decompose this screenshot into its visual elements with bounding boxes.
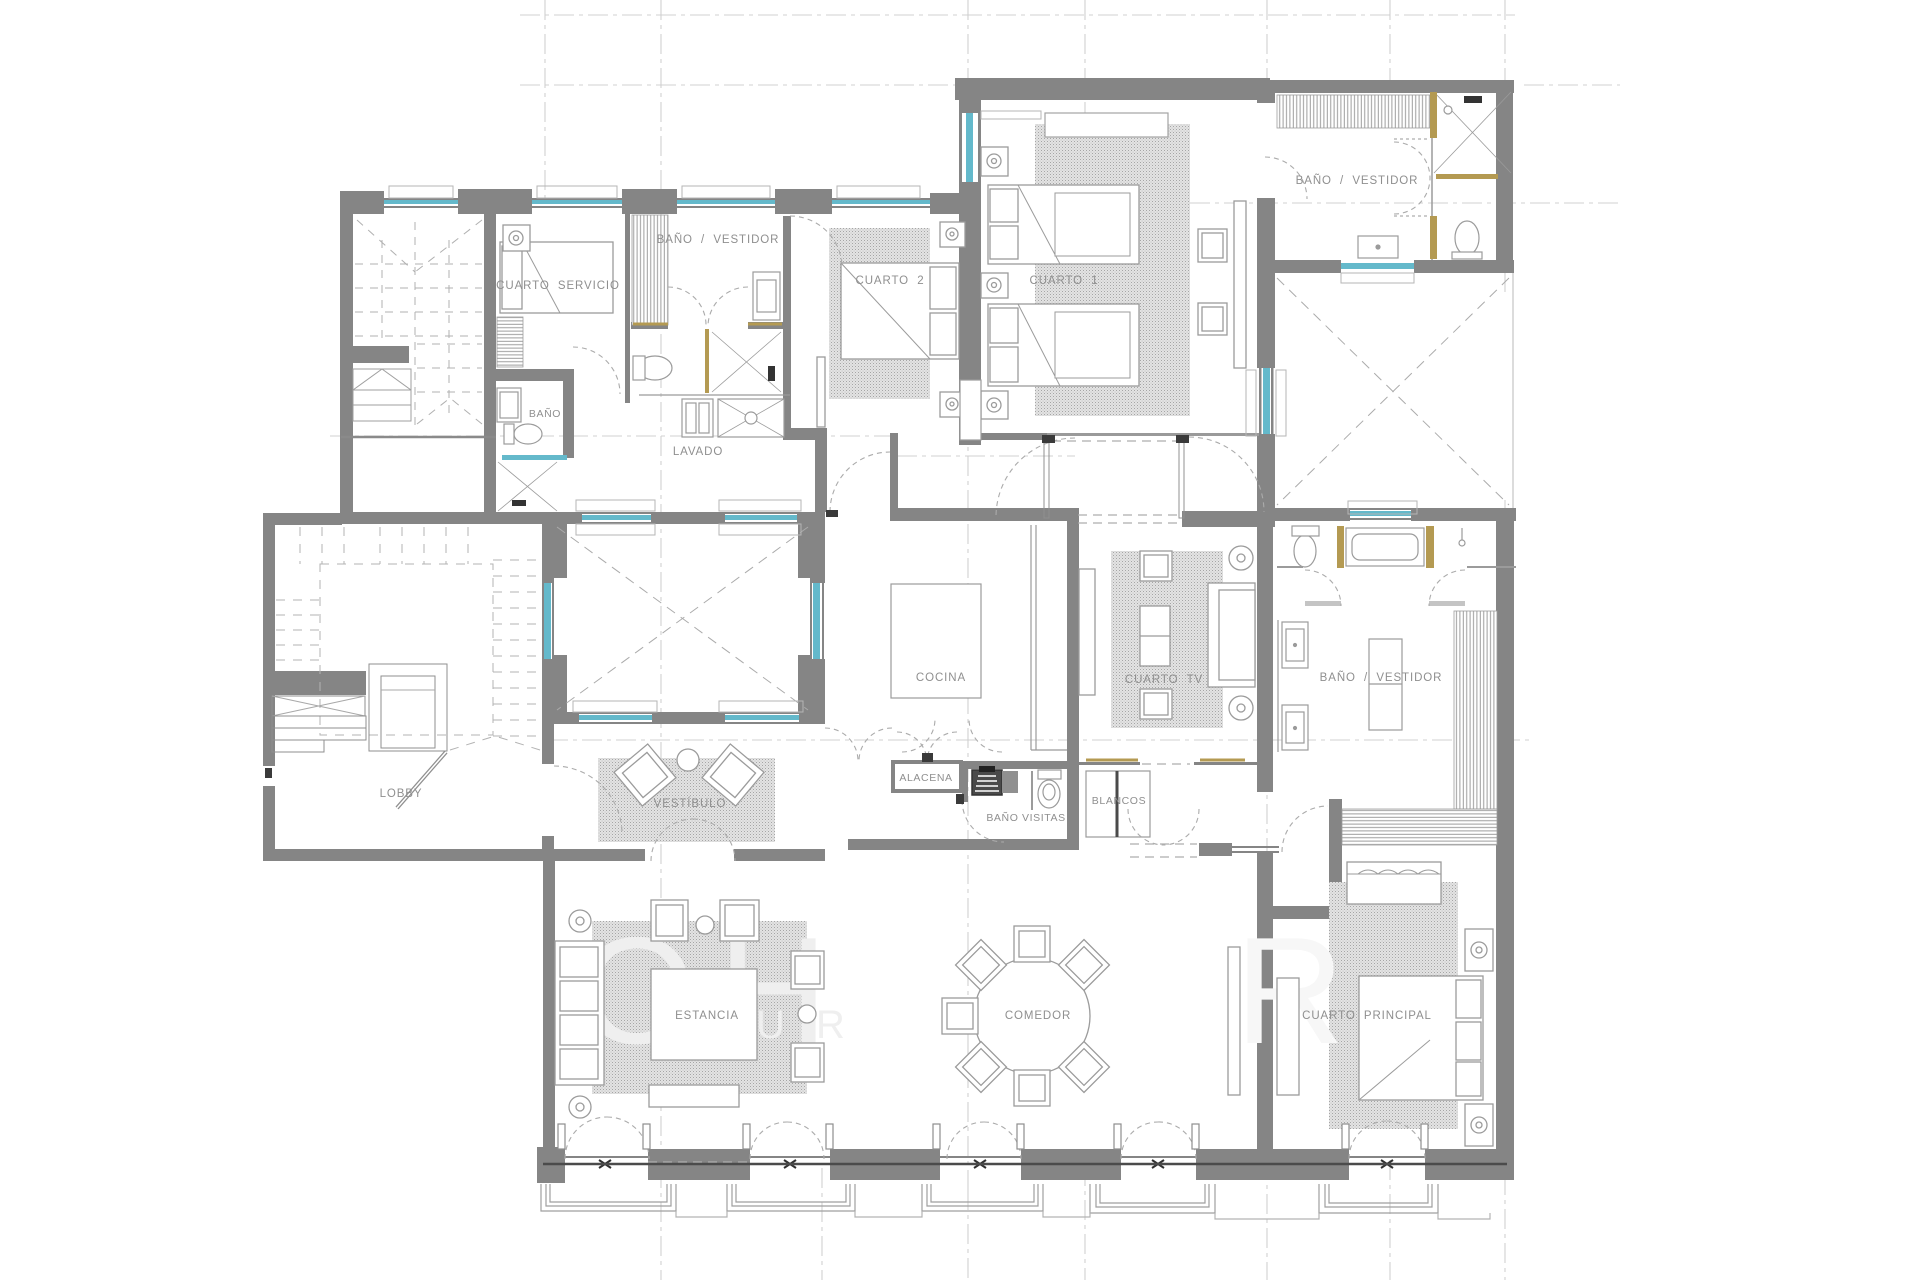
svg-text:COCINA: COCINA xyxy=(916,672,966,684)
svg-text:BLANCOS: BLANCOS xyxy=(1092,795,1146,807)
svg-text:VESTÍBULO: VESTÍBULO xyxy=(654,797,727,810)
svg-text:BAÑO / VESTIDOR: BAÑO / VESTIDOR xyxy=(1296,174,1419,187)
svg-text:CUARTO SERVICIO: CUARTO SERVICIO xyxy=(496,280,620,292)
svg-text:CUARTO TV: CUARTO TV xyxy=(1125,674,1203,686)
svg-text:ALACENA: ALACENA xyxy=(899,772,952,784)
svg-text:COMEDOR: COMEDOR xyxy=(1005,1010,1071,1022)
svg-text:BAÑO / VESTIDOR: BAÑO / VESTIDOR xyxy=(657,233,780,246)
svg-text:CUARTO 2: CUARTO 2 xyxy=(855,275,924,287)
svg-text:ESTANCIA: ESTANCIA xyxy=(675,1010,739,1022)
svg-text:LAVADO: LAVADO xyxy=(673,446,723,458)
svg-text:LOBBY: LOBBY xyxy=(380,788,423,800)
svg-text:BAÑO VISITAS: BAÑO VISITAS xyxy=(986,811,1065,824)
svg-text:BAÑO / VESTIDOR: BAÑO / VESTIDOR xyxy=(1320,671,1443,684)
svg-text:CUARTO 1: CUARTO 1 xyxy=(1029,275,1098,287)
svg-text:CUARTO PRINCIPAL: CUARTO PRINCIPAL xyxy=(1302,1010,1432,1022)
svg-text:BAÑO: BAÑO xyxy=(529,407,561,420)
